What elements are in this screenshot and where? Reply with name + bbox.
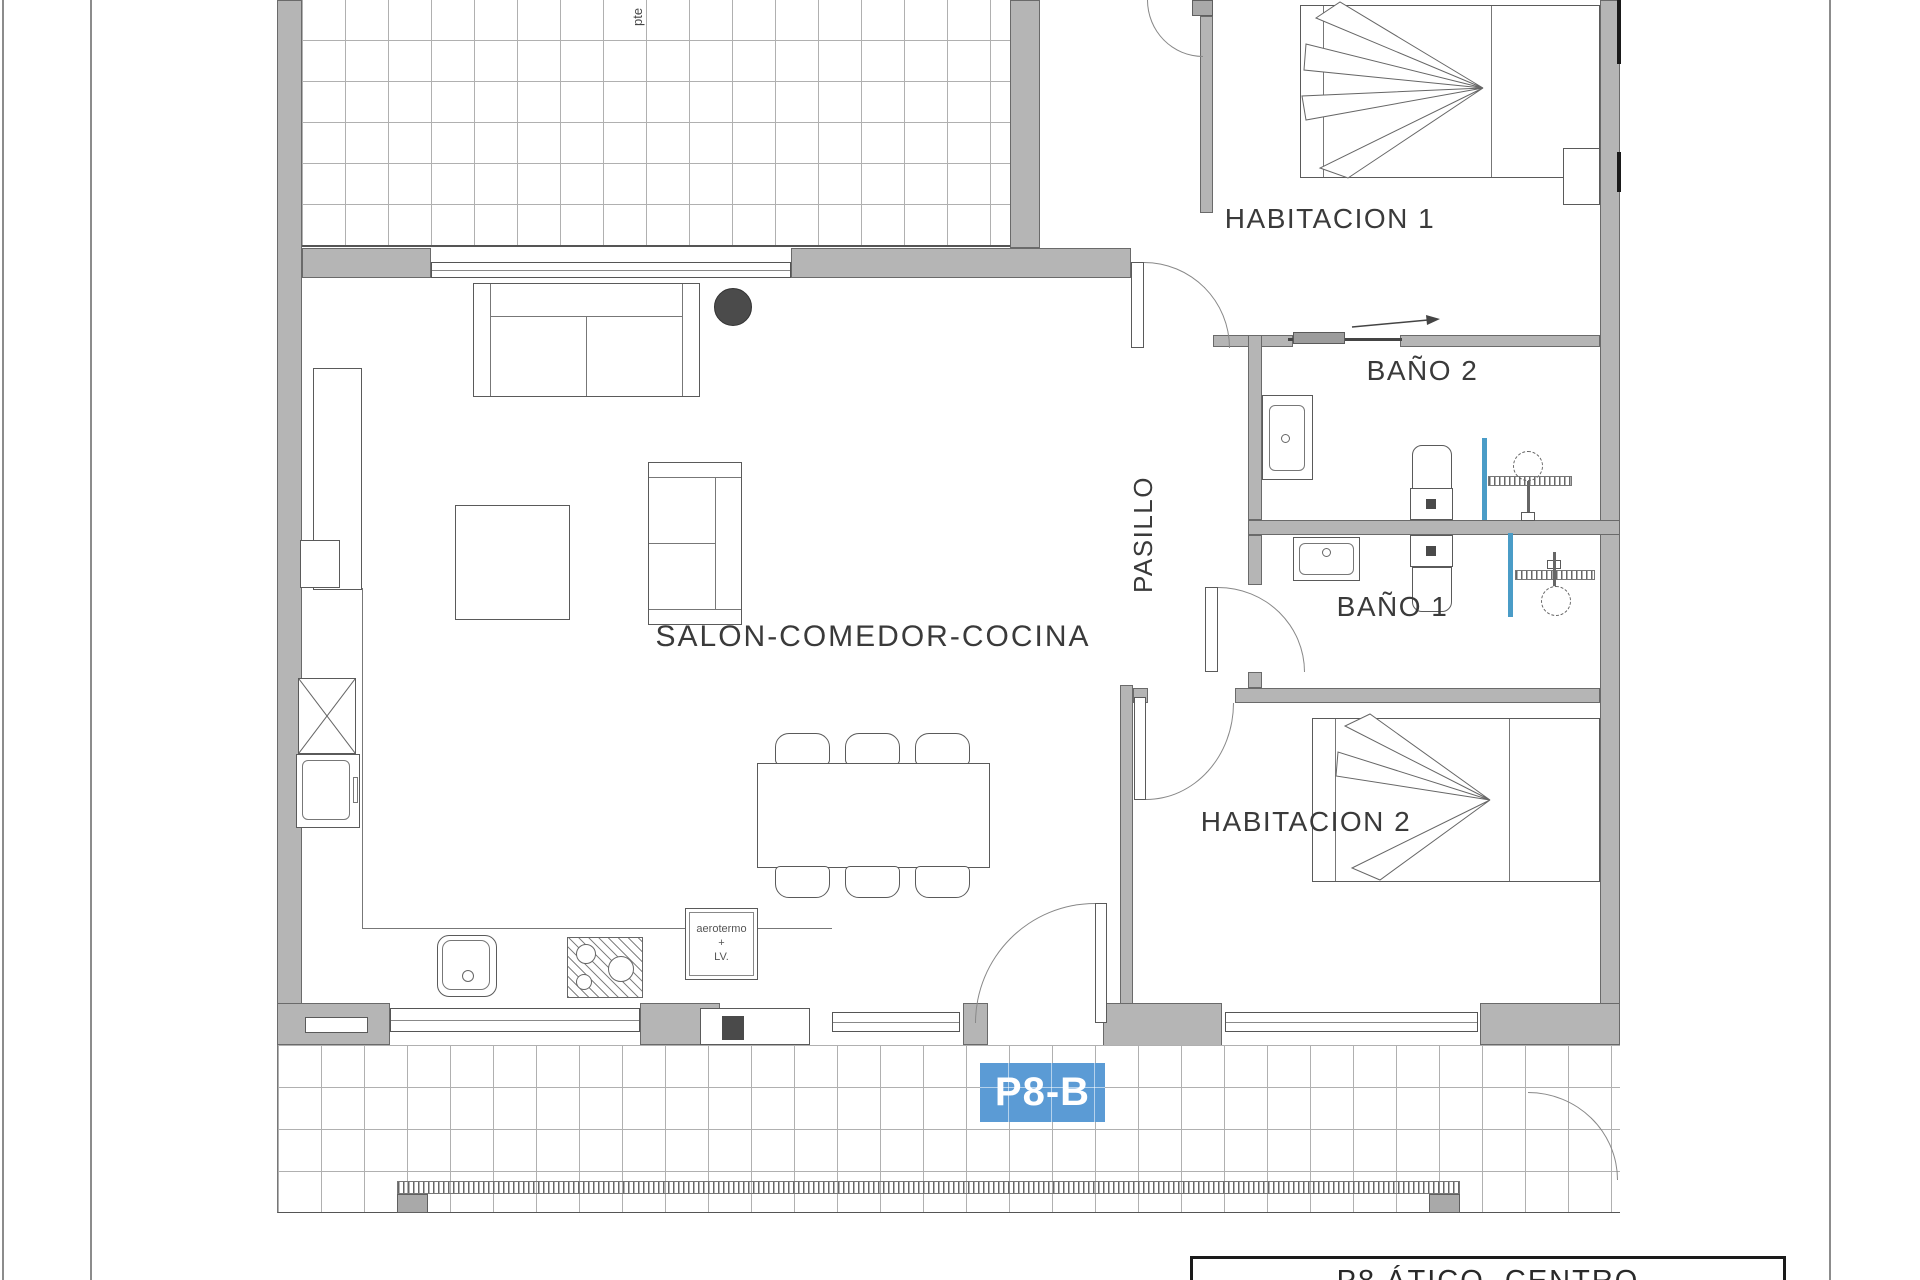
wall-pasillo-right-a: [1248, 335, 1262, 520]
bano1-toilet-tank: [1410, 535, 1453, 567]
window-marker-hab1-b: [1617, 152, 1621, 192]
counter-edge-horizontal: [362, 928, 832, 929]
counter-edge-vertical: [362, 588, 363, 928]
lamp-dot: [714, 288, 752, 326]
page-border-left-outer: [2, 0, 4, 1280]
floor-plan-page: pte: [0, 0, 1920, 1280]
bano2-toilet: [1412, 445, 1452, 490]
dining-chair: [915, 866, 970, 898]
wall-bottom-right-a: [1103, 1003, 1222, 1047]
shaft-pillar: [722, 1016, 744, 1040]
sliding-door-arrow-icon: [1350, 312, 1442, 334]
kitchen-sink: [437, 935, 497, 997]
terrace-railing: [397, 1181, 1460, 1194]
sliding-door-slab: [1293, 332, 1345, 344]
door-arc-lobby: [1144, 262, 1230, 348]
aerotermo-box: aerotermo + LV.: [685, 908, 758, 980]
bano1-shower-pipe: [1553, 552, 1556, 590]
label-salon: SALON-COMEDOR-COCINA: [573, 620, 1173, 654]
bano1-sink: [1293, 537, 1360, 581]
dining-chair: [775, 733, 830, 765]
window-kitchen: [390, 1008, 640, 1032]
label-hab1: HABITACION 1: [1180, 203, 1480, 235]
aerotermo-plus: +: [718, 937, 724, 951]
bano2-sink-cabinet: [1262, 395, 1313, 480]
wall-pasillo-right-c: [1248, 672, 1262, 688]
wall-bottom-right-b: [1480, 1003, 1620, 1045]
wall-bano2-top-right: [1400, 335, 1600, 347]
aerotermo-label: aerotermo: [696, 923, 746, 937]
wall-terrace-right: [1010, 0, 1040, 248]
railing-post-left: [397, 1194, 428, 1213]
label-bano2: BAÑO 2: [1320, 355, 1525, 387]
window-salon-top: [431, 262, 791, 278]
bano2-shower-bar: [1488, 476, 1572, 486]
sofa-main: [473, 283, 700, 397]
label-hab2: HABITACION 2: [1156, 806, 1456, 838]
label-bano1: BAÑO 1: [1290, 591, 1495, 623]
door-leaf-entry: [1095, 903, 1107, 1023]
slope-label: pte: [630, 0, 652, 26]
window-bottom-small: [832, 1012, 960, 1032]
dining-chair: [845, 866, 900, 898]
label-pasillo: PASILLO: [1128, 460, 1170, 610]
bano1-shower-glass: [1508, 533, 1513, 617]
door-leaf-hab2: [1134, 697, 1146, 800]
nightstand-hab1: [1563, 148, 1600, 205]
bed-hab2-pillow-fan: [1312, 710, 1502, 890]
wall-terrace-bottom-left: [302, 248, 431, 278]
dining-chair: [845, 733, 900, 765]
bano2-shower-pipe: [1527, 481, 1530, 514]
wall-terrace-bottom-mid: [791, 248, 1131, 278]
door-arc-hab2: [1146, 703, 1234, 800]
door-arc-entry: [975, 903, 1095, 1023]
terrace-top-floor: [302, 0, 1010, 247]
aerotermo-lv: LV.: [714, 951, 729, 965]
vent-bottom-left: [305, 1017, 368, 1033]
bano1-shower-head: [1541, 586, 1571, 616]
wall-banos-divider: [1248, 520, 1620, 535]
dining-chair: [915, 733, 970, 765]
sofa-side: [648, 462, 742, 625]
bed-hab1-pillow-fan: [1300, 0, 1500, 185]
page-border-right: [1829, 0, 1831, 1280]
window-hab2: [1225, 1012, 1478, 1032]
bano2-toilet-tank: [1410, 488, 1453, 520]
bano2-shower-glass: [1482, 438, 1487, 520]
wall-left: [277, 0, 302, 1045]
door-leaf-lobby: [1131, 262, 1144, 348]
wall-pasillo-right-b: [1248, 535, 1262, 585]
kitchen-cabinet: [300, 540, 340, 588]
bano2-shower-valve: [1521, 512, 1535, 521]
coffee-table: [455, 505, 570, 620]
dining-chair: [775, 866, 830, 898]
page-border-left-inner: [90, 0, 92, 1280]
wall-hab2-top: [1235, 688, 1600, 703]
railing-post-right: [1429, 1194, 1460, 1213]
unit-badge: P8-B: [980, 1063, 1105, 1122]
hob: [567, 937, 643, 998]
fridge: [298, 678, 356, 754]
dining-table: [757, 763, 990, 868]
title-block-text: P8 ÁTICO CENTRO: [1337, 1265, 1640, 1280]
entry-step-niche: [700, 1008, 810, 1045]
window-marker-hab1-a: [1617, 0, 1621, 64]
oven: [296, 754, 360, 828]
door-leaf-bano1: [1205, 587, 1218, 672]
unit-badge-text: P8-B: [995, 1070, 1090, 1115]
door-arc-hab1-top: [1147, 0, 1203, 57]
wall-salon-hab2-divider: [1120, 685, 1133, 1045]
title-block: P8 ÁTICO CENTRO: [1190, 1256, 1786, 1280]
